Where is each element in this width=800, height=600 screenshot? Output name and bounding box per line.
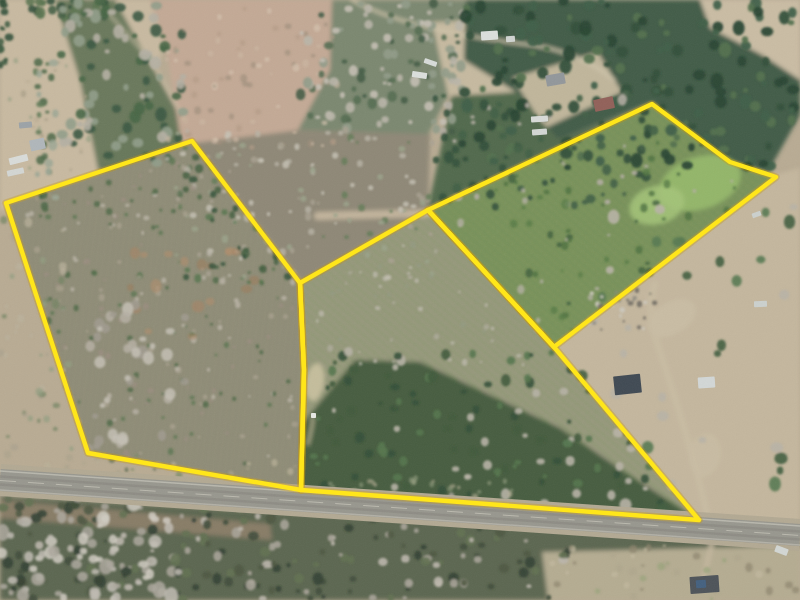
aerial-land-photo xyxy=(0,0,800,600)
aerial-scene-svg xyxy=(0,0,800,600)
film-grain-overlay xyxy=(0,0,800,600)
